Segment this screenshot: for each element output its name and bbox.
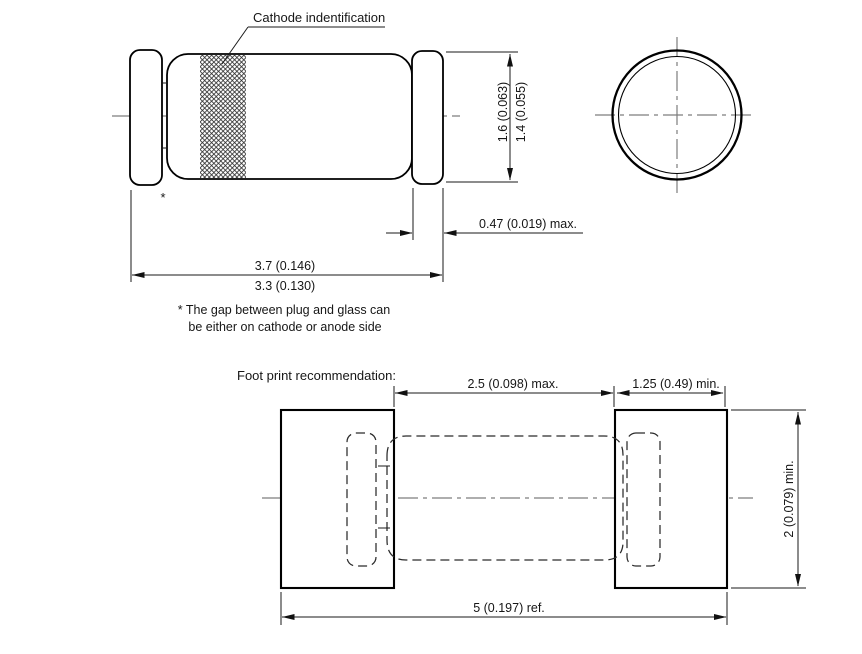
note-line2: be either on cathode or anode side <box>188 320 381 334</box>
dim-pad-gap-label: 2.5 (0.098) max. <box>467 377 558 391</box>
left-pad <box>281 410 394 588</box>
left-end-cap <box>130 50 162 185</box>
footprint: Foot print recommendation: 2.5 (0.098) m… <box>237 368 806 625</box>
dim-overall-length: 3.7 (0.146) 3.3 (0.130) <box>131 190 442 293</box>
dim-diameter-max-label: 1.6 (0.063) <box>496 82 510 142</box>
diode-package-drawing: Cathode indentification * 1.6 (0.063) 1.… <box>0 0 862 654</box>
dim-cap-length-label: 0.47 (0.019) max. <box>479 217 577 231</box>
cathode-band <box>200 55 246 178</box>
side-view: Cathode indentification * <box>112 10 460 205</box>
dim-length-max-label: 3.7 (0.146) <box>255 259 315 273</box>
note-line1: * The gap between plug and glass can <box>178 303 390 317</box>
footprint-title: Foot print recommendation: <box>237 368 396 383</box>
dim-diameter: 1.6 (0.063) 1.4 (0.055) <box>446 52 528 182</box>
dim-length-min-label: 3.3 (0.130) <box>255 279 315 293</box>
footnote: * The gap between plug and glass can be … <box>178 303 390 334</box>
dim-pad-height-label: 2 (0.079) min. <box>782 460 796 537</box>
dim-pad-width-label: 1.25 (0.49) min. <box>632 377 720 391</box>
drawing-canvas: Cathode indentification * 1.6 (0.063) 1.… <box>0 0 862 654</box>
dim-diameter-min-label: 1.4 (0.055) <box>514 82 528 142</box>
right-end-cap <box>412 51 443 184</box>
end-view <box>595 37 754 194</box>
cathode-label: Cathode indentification <box>253 10 385 25</box>
gap-asterisk: * <box>160 190 165 205</box>
dim-cap-length: 0.47 (0.019) max. <box>386 188 583 282</box>
right-pad <box>615 410 727 588</box>
dim-overall-footprint-label: 5 (0.197) ref. <box>473 601 545 615</box>
